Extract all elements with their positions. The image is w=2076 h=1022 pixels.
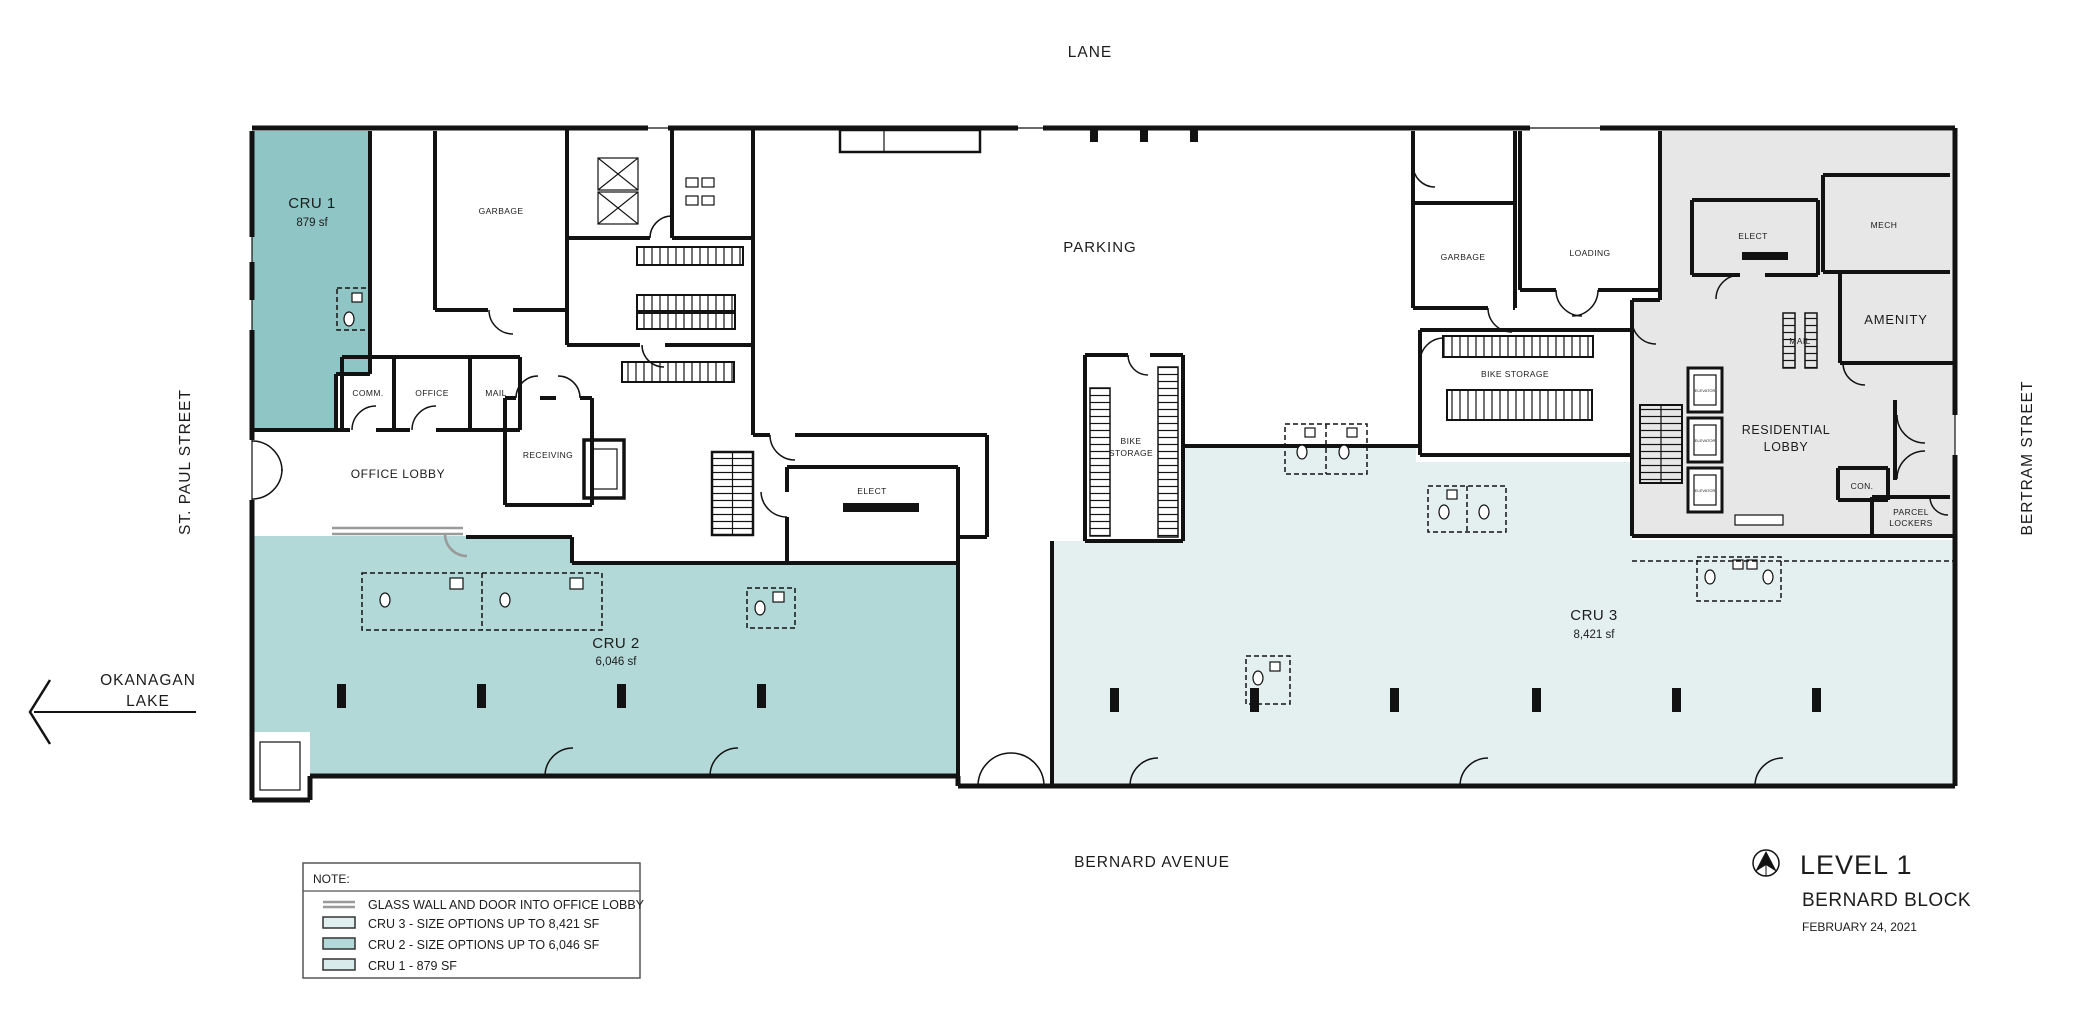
bertram-street-label: BERTRAM STREET [2019, 381, 2036, 536]
loading-label: LOADING [1569, 248, 1610, 258]
door-arc [1556, 290, 1582, 316]
bike-storage-center-label1: BIKE [1121, 436, 1142, 446]
bike-rack-right-top [1443, 336, 1593, 357]
door-arc [1572, 290, 1598, 316]
legend-note-box: NOTE: GLASS WALL AND DOOR INTO OFFICE LO… [303, 863, 645, 978]
washroom-fixture [702, 196, 714, 205]
door-arc [558, 376, 580, 398]
cru1-area [252, 131, 370, 430]
residential-lobby-label2: LOBBY [1764, 440, 1809, 454]
office-lobby-label: OFFICE LOBBY [351, 467, 446, 481]
legend-glass-wall-label: GLASS WALL AND DOOR INTO OFFICE LOBBY [368, 898, 645, 912]
st-paul-street-label: ST. PAUL STREET [177, 389, 194, 535]
legend-cru2-label: CRU 2 - SIZE OPTIONS UP TO 6,046 SF [368, 938, 600, 952]
door-arc [412, 406, 436, 430]
elevator-label: ELEVATOR [1695, 488, 1716, 493]
elect-res-label: ELECT [1738, 231, 1767, 241]
bike-rack [637, 313, 735, 329]
cru2-swatch [323, 938, 355, 949]
cru2-label: CRU 2 [592, 635, 640, 652]
parcel-lockers-label2: LOCKERS [1889, 518, 1932, 528]
elevator-bank-residential: ELEVATOR ELEVATOR ELEVATOR [1688, 368, 1722, 512]
cru1-label: CRU 1 [288, 195, 336, 212]
washroom-fixture [702, 178, 714, 187]
sheet-date: FEBRUARY 24, 2021 [1802, 920, 1917, 934]
title-block: LEVEL 1 BERNARD BLOCK FEBRUARY 24, 2021 [1753, 850, 1971, 934]
bernard-avenue-label: BERNARD AVENUE [1074, 854, 1230, 871]
washroom-fixture [686, 178, 698, 187]
residential-lobby-label1: RESIDENTIAL [1742, 423, 1831, 437]
bike-rack-right-bottom [1447, 390, 1592, 420]
mail-res-label: MAIL [1789, 336, 1810, 346]
door-arc [1128, 355, 1148, 375]
door-arc [761, 492, 787, 517]
bike-storage-right-label: BIKE STORAGE [1481, 369, 1549, 379]
office-label: OFFICE [415, 388, 449, 398]
lane-garage-vestibule [840, 130, 980, 152]
door-arc [1011, 753, 1044, 786]
cru3-label: CRU 3 [1570, 607, 1618, 624]
sw-vestibule-inner [260, 742, 300, 790]
project-name: BERNARD BLOCK [1802, 890, 1971, 911]
con-label: CON. [1851, 481, 1874, 491]
bike-storage-center-label2: STORAGE [1109, 448, 1153, 458]
elect-bench [843, 503, 919, 512]
door-arc [978, 753, 1011, 786]
washroom-fixture [686, 196, 698, 205]
mech-label: MECH [1871, 220, 1898, 230]
lobby-desk [1735, 515, 1783, 525]
bike-rack-central-left [1090, 388, 1110, 536]
parking-label: PARKING [1063, 239, 1136, 256]
floor-plan-page: ELEVATOR ELEVATOR ELEVATOR [0, 0, 2076, 1022]
bike-rack [622, 362, 734, 382]
legend-cru1-label: CRU 1 - 879 SF [368, 959, 457, 973]
cru3-area-label: 8,421 sf [1574, 629, 1616, 641]
door-arc [489, 310, 513, 334]
door-arc [650, 216, 672, 238]
door-arc [1413, 165, 1435, 187]
okanagan-label-line2: LAKE [126, 693, 170, 710]
elect-res-bench [1742, 252, 1788, 260]
north-arrow-icon [1753, 850, 1779, 876]
garbage-right-label: GARBAGE [1441, 252, 1486, 262]
cru2-area-label: 6,046 sf [596, 656, 638, 668]
elevator-office-cab [591, 449, 617, 489]
lane-label: LANE [1068, 44, 1113, 61]
door-arc [352, 406, 376, 430]
sheet-title: LEVEL 1 [1800, 850, 1913, 880]
okanagan-label-line1: OKANAGAN [100, 672, 196, 689]
cru3-swatch [323, 917, 355, 928]
bike-rack [637, 295, 735, 311]
cru1-swatch [323, 959, 355, 970]
parcel-lockers-label1: PARCEL [1893, 507, 1929, 517]
okanagan-lake-callout: OKANAGAN LAKE [30, 672, 196, 744]
elevator-label: ELEVATOR [1695, 438, 1716, 443]
receiving-label: RECEIVING [523, 450, 573, 460]
elect-center-label: ELECT [857, 486, 886, 496]
legend-cru3-label: CRU 3 - SIZE OPTIONS UP TO 8,421 SF [368, 917, 600, 931]
door-arc [252, 469, 282, 499]
glass-wall-lines [332, 528, 463, 534]
mail-label: MAIL [485, 388, 506, 398]
bike-rack [637, 247, 743, 265]
legend-header: NOTE: [313, 872, 350, 886]
bike-rack-central-right [1158, 367, 1178, 537]
elevator-label: ELEVATOR [1695, 388, 1716, 393]
door-arc [252, 441, 282, 471]
garbage-left-label: GARBAGE [479, 206, 524, 216]
cru1-area-label: 879 sf [296, 217, 328, 229]
legend-item-glass-wall: GLASS WALL AND DOOR INTO OFFICE LOBBY [323, 898, 645, 912]
amenity-label: AMENITY [1864, 312, 1927, 327]
comm-label: COMM. [352, 388, 383, 398]
door-arc [770, 435, 795, 460]
door-arc [1420, 338, 1444, 362]
floor-plan-canvas: ELEVATOR ELEVATOR ELEVATOR [0, 0, 2076, 1022]
